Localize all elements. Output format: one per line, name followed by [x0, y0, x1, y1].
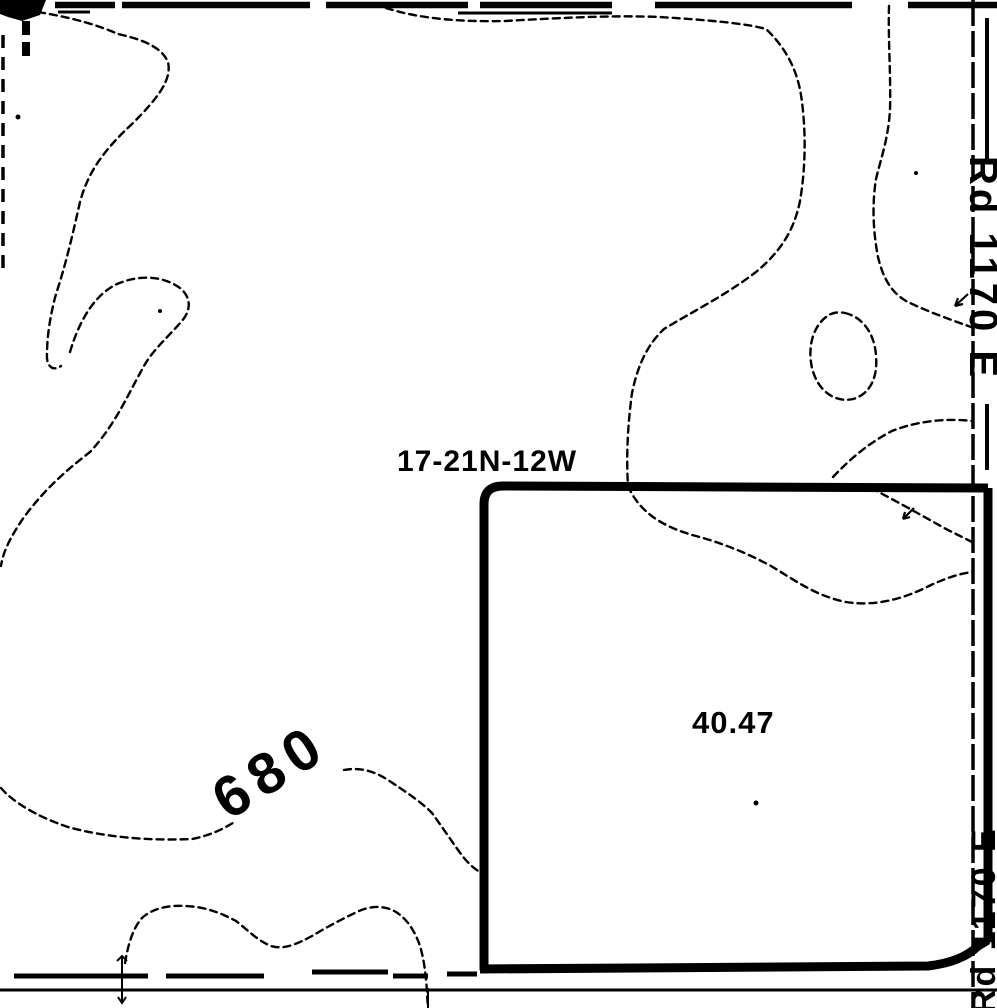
road-name-label-bottom: Rd 1170 E: [967, 826, 997, 1008]
contour-east-ridge: [874, 6, 971, 327]
contour-680-west: [1, 788, 236, 840]
map-speck: [914, 171, 918, 175]
map-speck: [754, 801, 759, 806]
map-linework: [0, 0, 997, 1008]
road-top-echo-line: [58, 12, 612, 13]
contour-small-oval: [810, 312, 876, 399]
contour-hook-loop: [1, 278, 189, 566]
leader-arrow-lower: [903, 508, 914, 519]
road-name-label-top: Rd 1170 E: [963, 156, 997, 381]
contour-680-east: [344, 769, 480, 872]
map-speck: [16, 115, 21, 120]
contour-spur-lower: [871, 488, 972, 542]
contour-main-sweep: [386, 8, 973, 603]
road-bottom-dashed-line: [14, 972, 477, 976]
contour-upper-left-hill: [38, 12, 169, 368]
plat-map-canvas: 17-21N-12W 40.47 680 Rd 1170 E Rd 1170 E: [0, 0, 997, 1008]
road-lines: [0, 0, 997, 1008]
contour-spur-upper: [833, 420, 972, 477]
parcel-acreage-label: 40.47: [692, 705, 775, 741]
parcel-edge-bottom[interactable]: [480, 940, 988, 969]
section-township-range-label: 17-21N-12W: [397, 445, 577, 479]
map-speck: [158, 309, 162, 313]
contour-two-hump: [125, 906, 428, 1008]
